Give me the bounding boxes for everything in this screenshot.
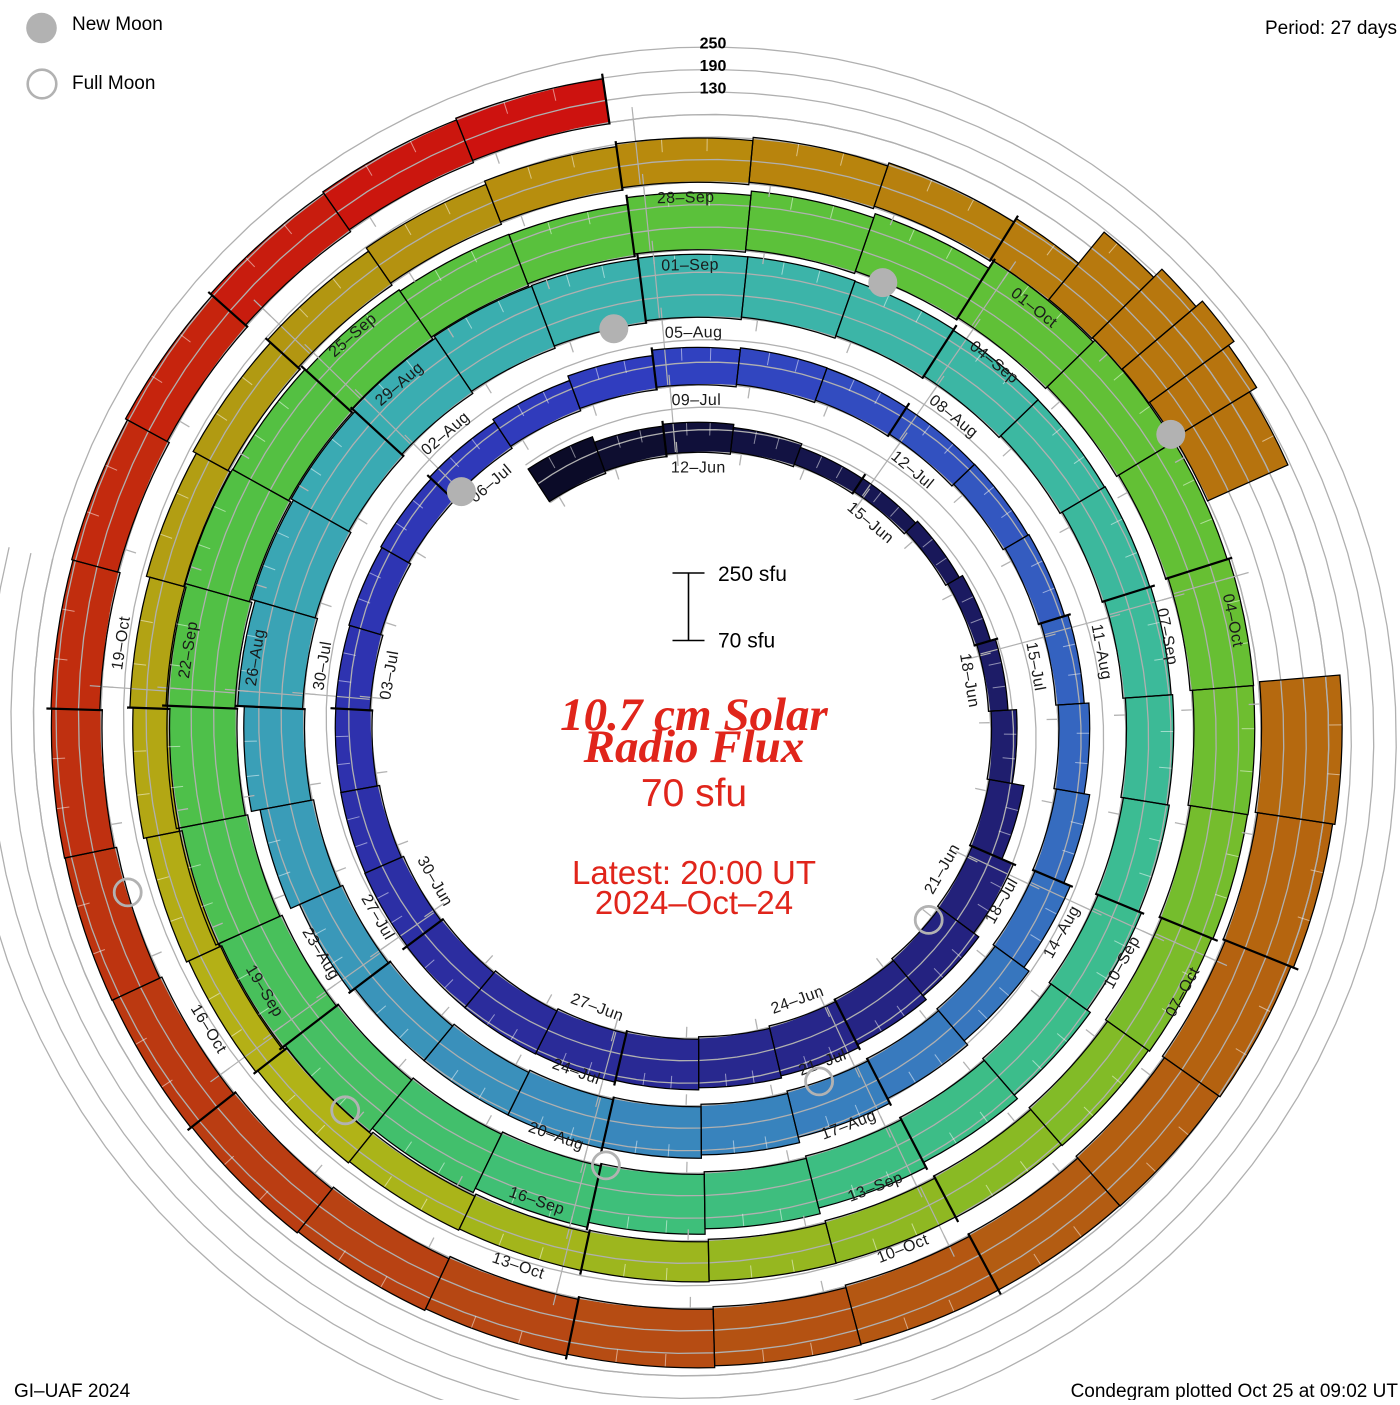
svg-text:09–Jul: 09–Jul xyxy=(672,392,722,409)
svg-text:05–Aug: 05–Aug xyxy=(665,324,723,342)
svg-text:Full Moon: Full Moon xyxy=(72,73,155,94)
svg-text:01–Sep: 01–Sep xyxy=(661,257,719,275)
svg-text:New Moon: New Moon xyxy=(72,14,163,35)
svg-text:70 sfu: 70 sfu xyxy=(718,630,775,653)
svg-text:12–Jun: 12–Jun xyxy=(671,459,726,476)
svg-text:2024–Oct–24: 2024–Oct–24 xyxy=(595,884,793,921)
svg-text:250: 250 xyxy=(700,36,727,53)
svg-text:Period: 27 days: Period: 27 days xyxy=(1265,18,1397,39)
svg-text:Condegram plotted Oct 25 at 09: Condegram plotted Oct 25 at 09:02 UT xyxy=(1071,1381,1399,1400)
svg-text:28–Sep: 28–Sep xyxy=(657,189,715,207)
svg-text:250 sfu: 250 sfu xyxy=(718,563,787,586)
svg-text:190: 190 xyxy=(700,58,727,75)
svg-text:Radio Flux: Radio Flux xyxy=(583,721,805,773)
svg-text:GI–UAF 2024: GI–UAF 2024 xyxy=(14,1381,131,1400)
svg-text:70 sfu: 70 sfu xyxy=(641,772,747,815)
svg-text:130: 130 xyxy=(700,81,727,98)
